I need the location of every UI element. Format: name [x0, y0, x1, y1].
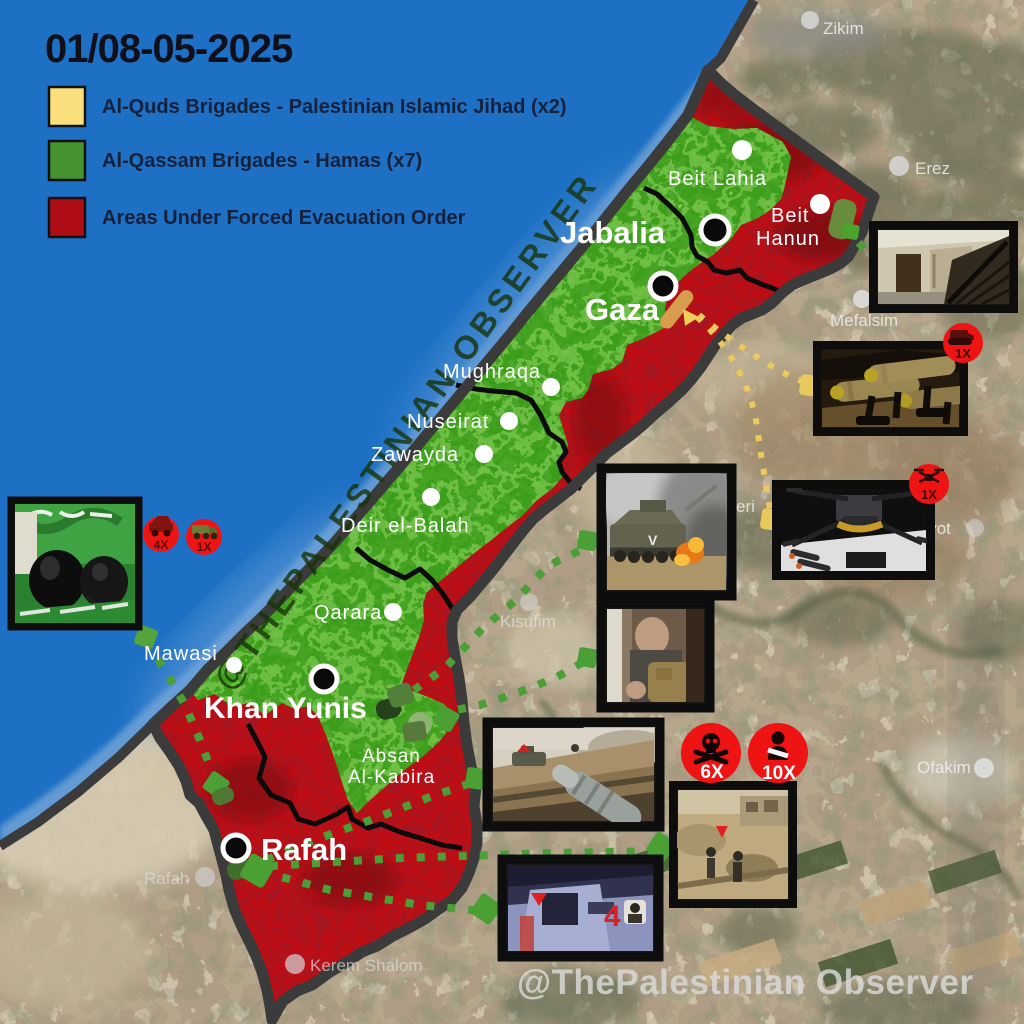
svg-text:Al-Kabira: Al-Kabira: [348, 767, 435, 788]
svg-text:V: V: [648, 532, 658, 548]
svg-text:Hanun: Hanun: [756, 228, 820, 250]
svg-text:Ofakim: Ofakim: [917, 758, 971, 777]
svg-text:Erez: Erez: [915, 159, 950, 178]
svg-text:Gaza: Gaza: [585, 292, 660, 327]
svg-text:1X: 1X: [955, 346, 971, 361]
svg-text:Beit Lahia: Beit Lahia: [668, 168, 767, 190]
svg-text:Jabalia: Jabalia: [560, 215, 666, 250]
svg-text:Al-Qassam Brigades - Hamas (x: Al-Qassam Brigades - Hamas (x7): [102, 150, 422, 172]
svg-text:Kerem Shalom: Kerem Shalom: [310, 956, 422, 975]
svg-text:Areas Under Forced Evacuation: Areas Under Forced Evacuation Order: [102, 207, 466, 229]
svg-text:Khan Yunis: Khan Yunis: [204, 692, 367, 725]
svg-text:6X: 6X: [700, 762, 724, 783]
svg-text:Mughraqa: Mughraqa: [443, 361, 541, 383]
svg-text:Qarara: Qarara: [314, 602, 382, 624]
svg-text:Kisufim: Kisufim: [500, 612, 556, 631]
svg-text:Mefalsim: Mefalsim: [830, 311, 898, 330]
svg-text:01/08-05-2025: 01/08-05-2025: [45, 27, 293, 71]
svg-text:Beit: Beit: [771, 205, 809, 227]
svg-text:4X: 4X: [154, 538, 169, 552]
svg-text:Al-Quds Brigades - Palestinia: Al-Quds Brigades - Palestinian Islamic J…: [102, 96, 567, 118]
svg-text:Zikim: Zikim: [823, 19, 864, 38]
svg-text:Absan: Absan: [362, 746, 421, 767]
svg-text:1X: 1X: [921, 487, 937, 502]
svg-text:10X: 10X: [762, 763, 796, 784]
svg-text:Nuseirat: Nuseirat: [407, 411, 489, 433]
svg-text:@ThePalestinian Observer: @ThePalestinian Observer: [517, 963, 974, 1002]
svg-text:Mawasi: Mawasi: [144, 643, 218, 665]
svg-text:Rafah: Rafah: [144, 869, 189, 888]
svg-text:Zawayda: Zawayda: [371, 444, 459, 466]
svg-text:4: 4: [604, 900, 621, 933]
svg-text:Rafah: Rafah: [261, 832, 347, 867]
svg-text:1X: 1X: [197, 540, 212, 554]
svg-text:Deir el-Balah: Deir el-Balah: [341, 515, 470, 537]
